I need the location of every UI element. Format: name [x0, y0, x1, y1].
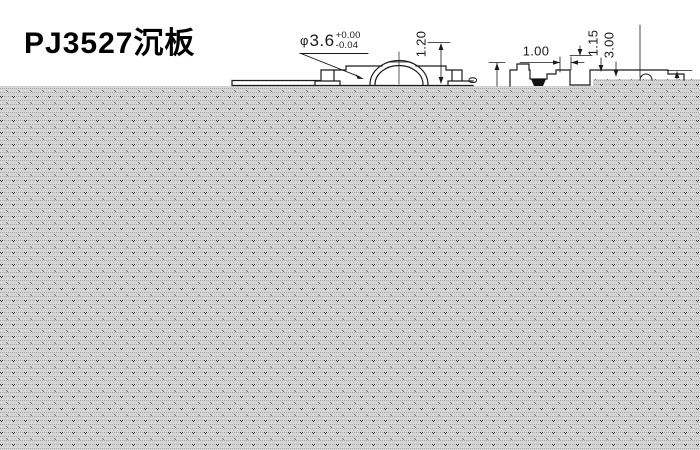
dim-length-label: 3.00 — [602, 32, 617, 59]
diameter-symbol: φ — [300, 34, 308, 47]
dither-pattern-region — [0, 79, 700, 450]
cad-screenshot: PJ3527沉板 φ 3.6 +0.00 -0.04 1.20 0 1.00 1… — [0, 0, 700, 450]
dim-diameter-label: φ 3.6 +0.00 -0.04 — [300, 31, 361, 51]
dim-width-label: 1.00 — [523, 44, 550, 59]
drawing-canvas — [0, 0, 700, 450]
dim-height-label: 1.20 — [414, 31, 429, 58]
dim-partial-label: 0 — [466, 77, 480, 84]
dim-depth-label: 1.15 — [586, 30, 601, 57]
tolerance-lower: -0.04 — [336, 41, 361, 51]
diameter-value: 3.6 — [309, 32, 334, 49]
page-title: PJ3527沉板 — [24, 18, 195, 62]
diameter-tolerance: +0.00 -0.04 — [336, 31, 361, 51]
